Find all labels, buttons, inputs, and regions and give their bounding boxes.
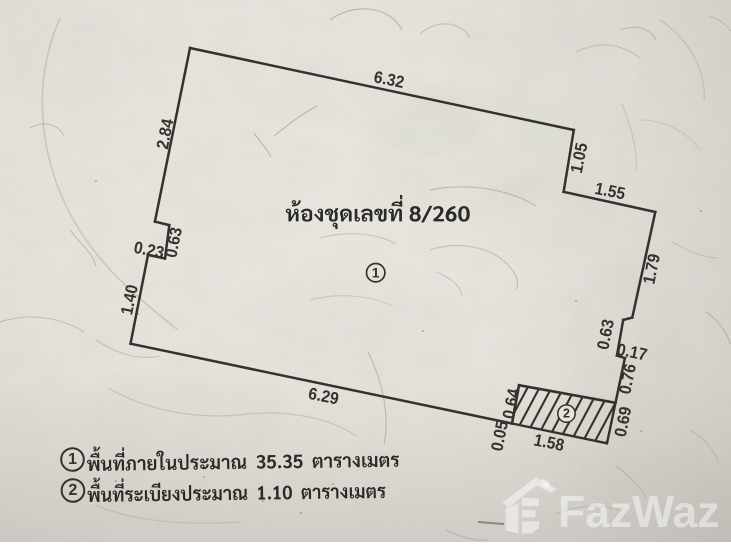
svg-text:2: 2 — [68, 482, 77, 499]
svg-text:FazWaz: FazWaz — [558, 488, 720, 537]
svg-text:2: 2 — [563, 407, 570, 421]
svg-text:1: 1 — [372, 265, 380, 281]
svg-text:1: 1 — [68, 451, 77, 468]
